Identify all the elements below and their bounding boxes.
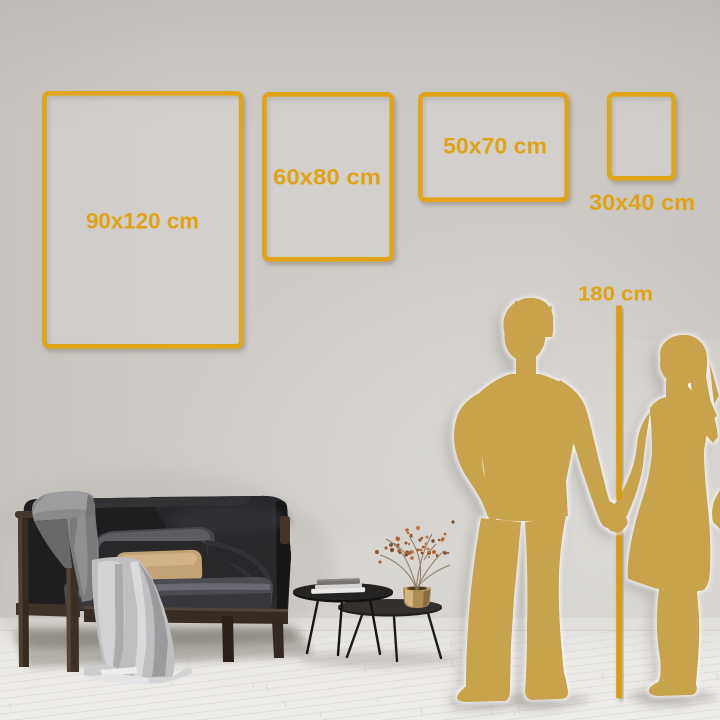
svg-text:90x120 cm: 90x120 cm xyxy=(86,209,199,234)
svg-text:30x40 cm: 30x40 cm xyxy=(589,190,695,215)
svg-text:180 cm: 180 cm xyxy=(578,283,653,306)
svg-text:50x70 cm: 50x70 cm xyxy=(443,134,547,159)
svg-text:60x80 cm: 60x80 cm xyxy=(273,165,381,190)
